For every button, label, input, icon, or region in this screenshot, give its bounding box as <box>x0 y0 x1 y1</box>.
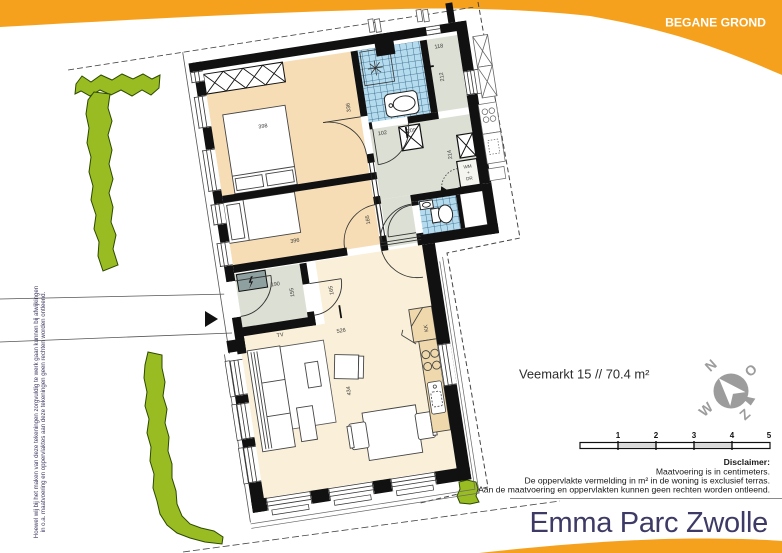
svg-text:1: 1 <box>616 431 621 440</box>
svg-text:5: 5 <box>767 431 772 440</box>
svg-text:3: 3 <box>692 431 697 440</box>
svg-text:TV: TV <box>276 332 284 339</box>
svg-text:Hoewel wij bij het maken van d: Hoewel wij bij het maken van deze tekeni… <box>33 286 40 538</box>
svg-text:2: 2 <box>654 431 659 440</box>
svg-text:in o.a. maatvoering en oppervl: in o.a. maatvoering en oppervlaktes aan … <box>40 291 47 532</box>
svg-text:Aan de maatvoering en oppervla: Aan de maatvoering en oppervlakten kunne… <box>478 485 770 495</box>
svg-text:BEGANE GROND: BEGANE GROND <box>665 16 766 30</box>
svg-text:4: 4 <box>730 431 735 440</box>
svg-text:Veemarkt 15 // 70.4 m²: Veemarkt 15 // 70.4 m² <box>519 367 650 382</box>
svg-text:KK: KK <box>423 324 430 332</box>
svg-text:Emma Parc Zwolle: Emma Parc Zwolle <box>529 507 768 539</box>
svg-text:Disclaimer:: Disclaimer: <box>724 457 770 467</box>
